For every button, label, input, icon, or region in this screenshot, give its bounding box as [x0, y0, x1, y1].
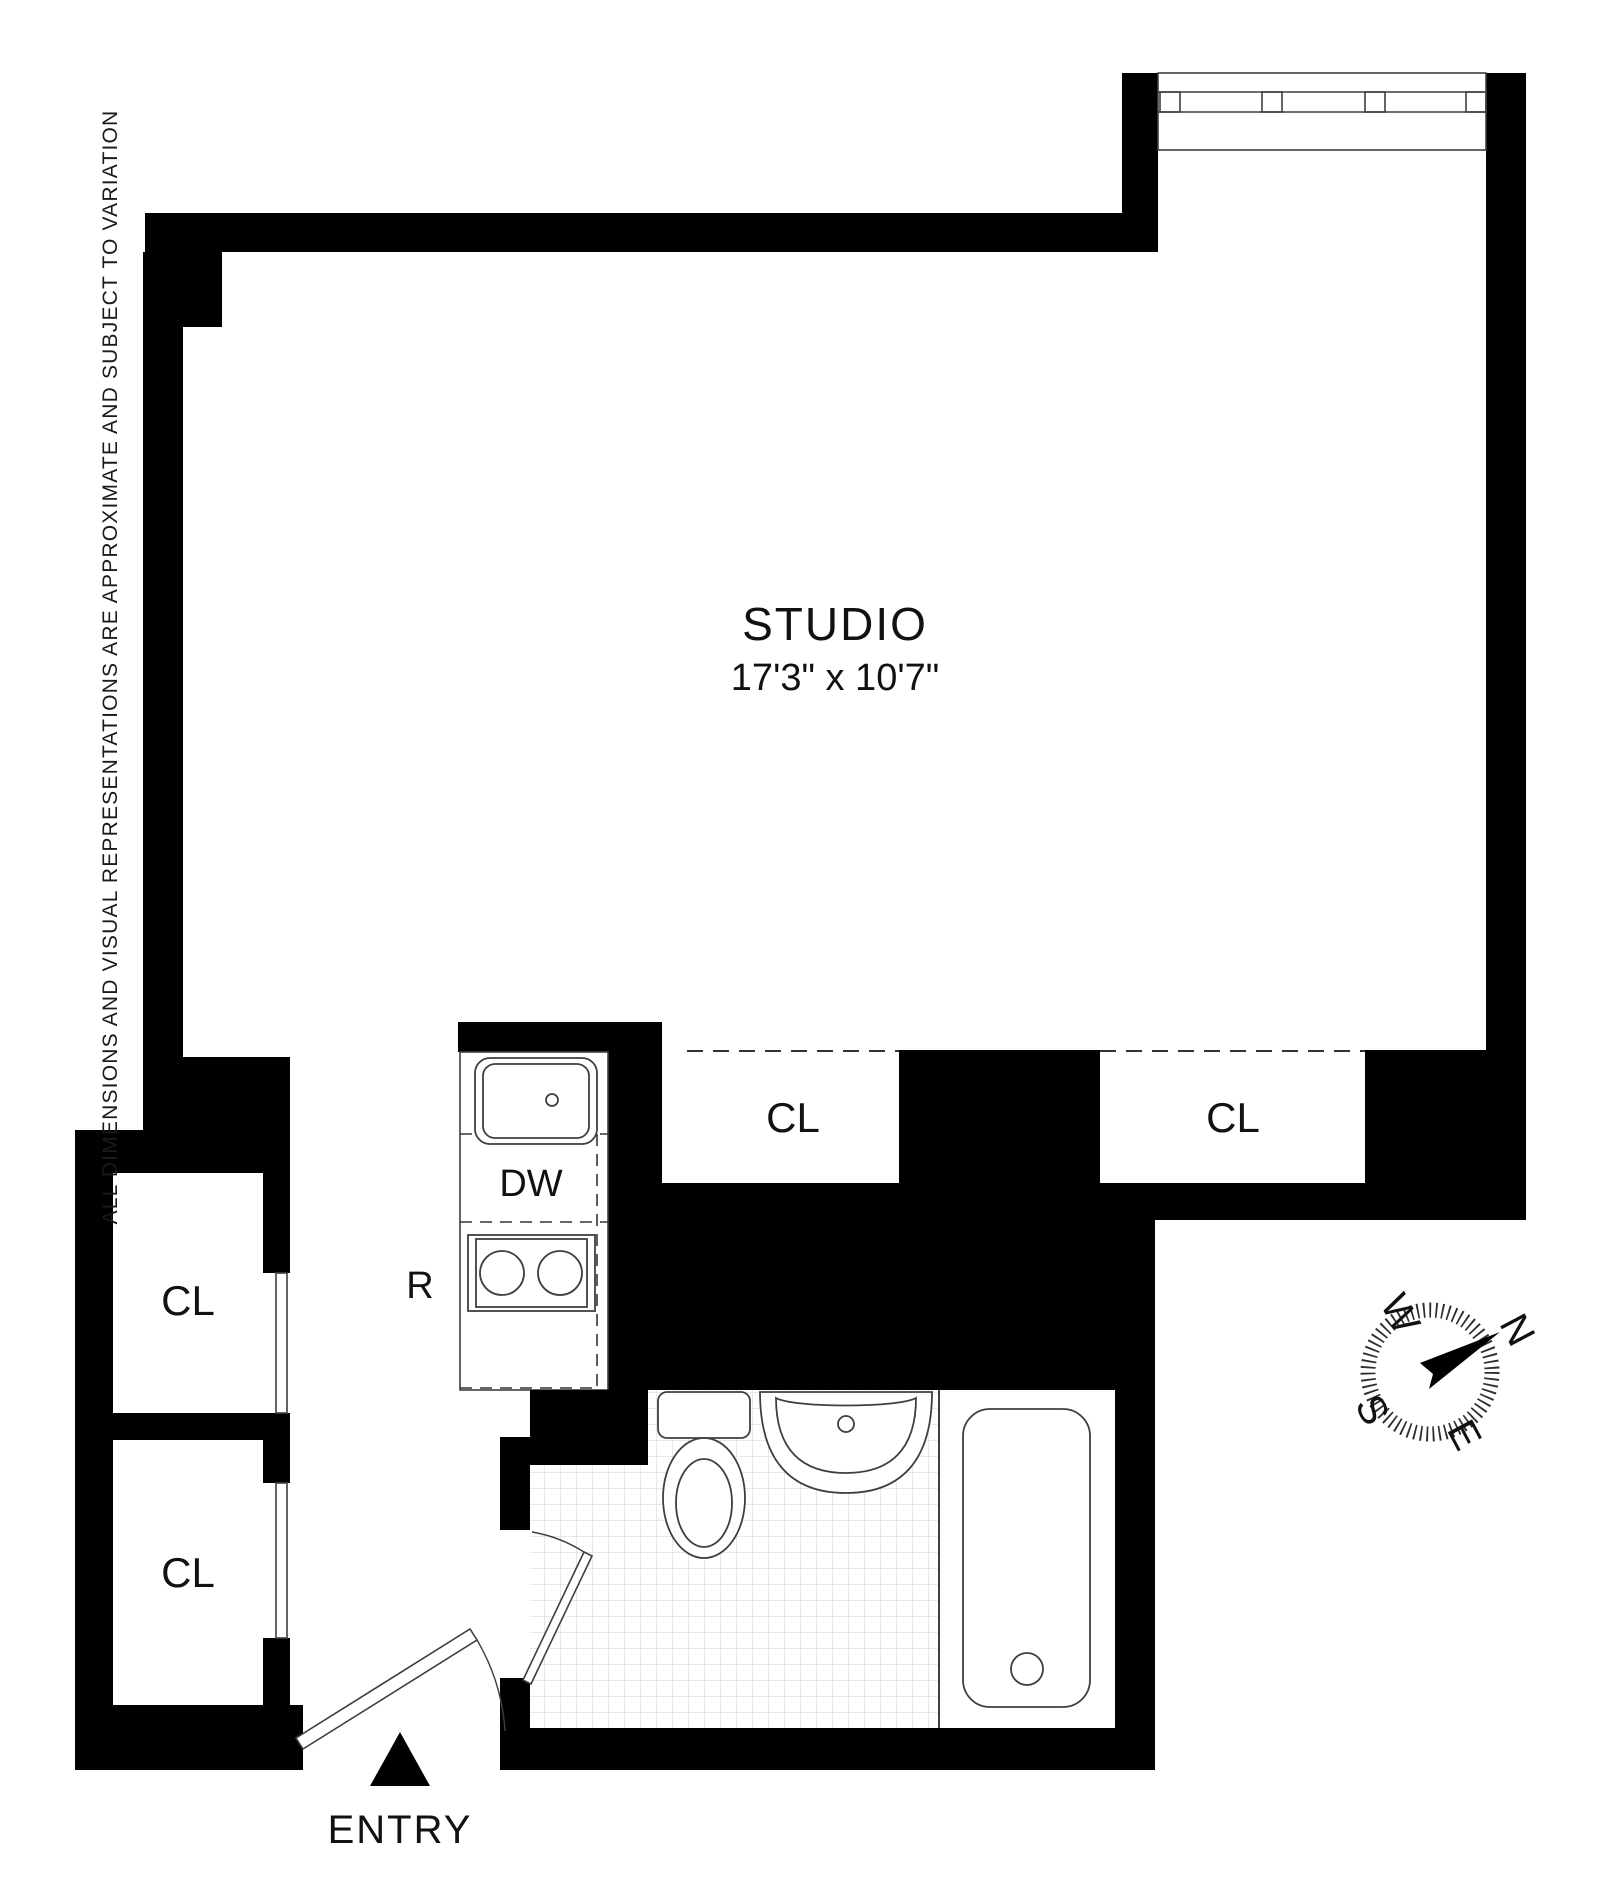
kitchen-sink-inner [483, 1064, 589, 1138]
compass-needle-icon [1420, 1332, 1500, 1389]
bathroom-faucet [838, 1416, 854, 1432]
compass: N W S E [1346, 1287, 1543, 1457]
toilet-bowl-inner [676, 1459, 732, 1547]
bathroom [523, 1390, 1090, 1728]
wall-kitchen-top [458, 1022, 662, 1052]
bathtub [963, 1409, 1090, 1707]
wall-right [1486, 73, 1526, 1185]
studio-room: STUDIO 17'3" x 10'7" [731, 598, 939, 699]
range-label: R [406, 1265, 433, 1307]
kitchen-faucet [546, 1094, 558, 1106]
disclaimer-text: ALL DIMENSIONS AND VISUAL REPRESENTATION… [99, 110, 122, 1225]
wall-closet-top-block [143, 1057, 290, 1173]
wall-closet-pillar-1 [263, 1413, 290, 1483]
compass-west: W [1372, 1287, 1429, 1341]
range-burner-right [538, 1251, 582, 1295]
wall-top [145, 213, 1122, 252]
studio-room-dimensions: 17'3" x 10'7" [731, 657, 939, 699]
closet-label-bottom-2: CL [1206, 1094, 1260, 1141]
closet-label-left-1: CL [161, 1277, 215, 1324]
wall-bath-top [608, 1183, 1155, 1390]
kitchen-sink [475, 1058, 597, 1144]
wall-cl-right-block [1365, 1050, 1526, 1185]
entry: ENTRY [296, 1629, 505, 1852]
wall-closet-right-upper [263, 1173, 290, 1273]
wall-closet-divider [113, 1413, 263, 1440]
dishwasher-label: DW [499, 1163, 562, 1205]
wall-bath-bottom [500, 1728, 1155, 1770]
range [468, 1235, 595, 1311]
wall-cl-divider [899, 1050, 1100, 1185]
wall-outer-left [75, 1130, 113, 1770]
wall-left [143, 252, 183, 1163]
closet-door-1 [276, 1273, 287, 1413]
wall-bath-right [1115, 1220, 1155, 1770]
wall-window-left [1122, 73, 1158, 252]
entry-label: ENTRY [328, 1808, 473, 1852]
toilet-tank [658, 1392, 750, 1438]
bathtub-drain [1011, 1653, 1043, 1685]
entry-arrow-icon [370, 1732, 430, 1786]
range-burner-left [480, 1251, 524, 1295]
toilet [658, 1392, 750, 1558]
wall-bath-left-upper [500, 1437, 530, 1530]
closet-label-bottom-1: CL [766, 1094, 820, 1141]
floor-plan-svg: CL CL CL CL DW R [0, 0, 1600, 1883]
studio-room-name: STUDIO [742, 598, 928, 650]
compass-east: E [1438, 1413, 1489, 1457]
closet-label-left-2: CL [161, 1549, 215, 1596]
floor-plan: CL CL CL CL DW R [0, 0, 1600, 1883]
entry-door-leaf [296, 1629, 477, 1749]
wall-bottom-right-band [1155, 1183, 1526, 1220]
window [1158, 73, 1486, 150]
closet-door-2 [276, 1483, 287, 1638]
wall-bath-topleft-cover [530, 1390, 648, 1465]
wall-bottom-left [75, 1705, 303, 1770]
compass-north: N [1491, 1307, 1543, 1353]
kitchen: DW R [406, 1052, 608, 1390]
